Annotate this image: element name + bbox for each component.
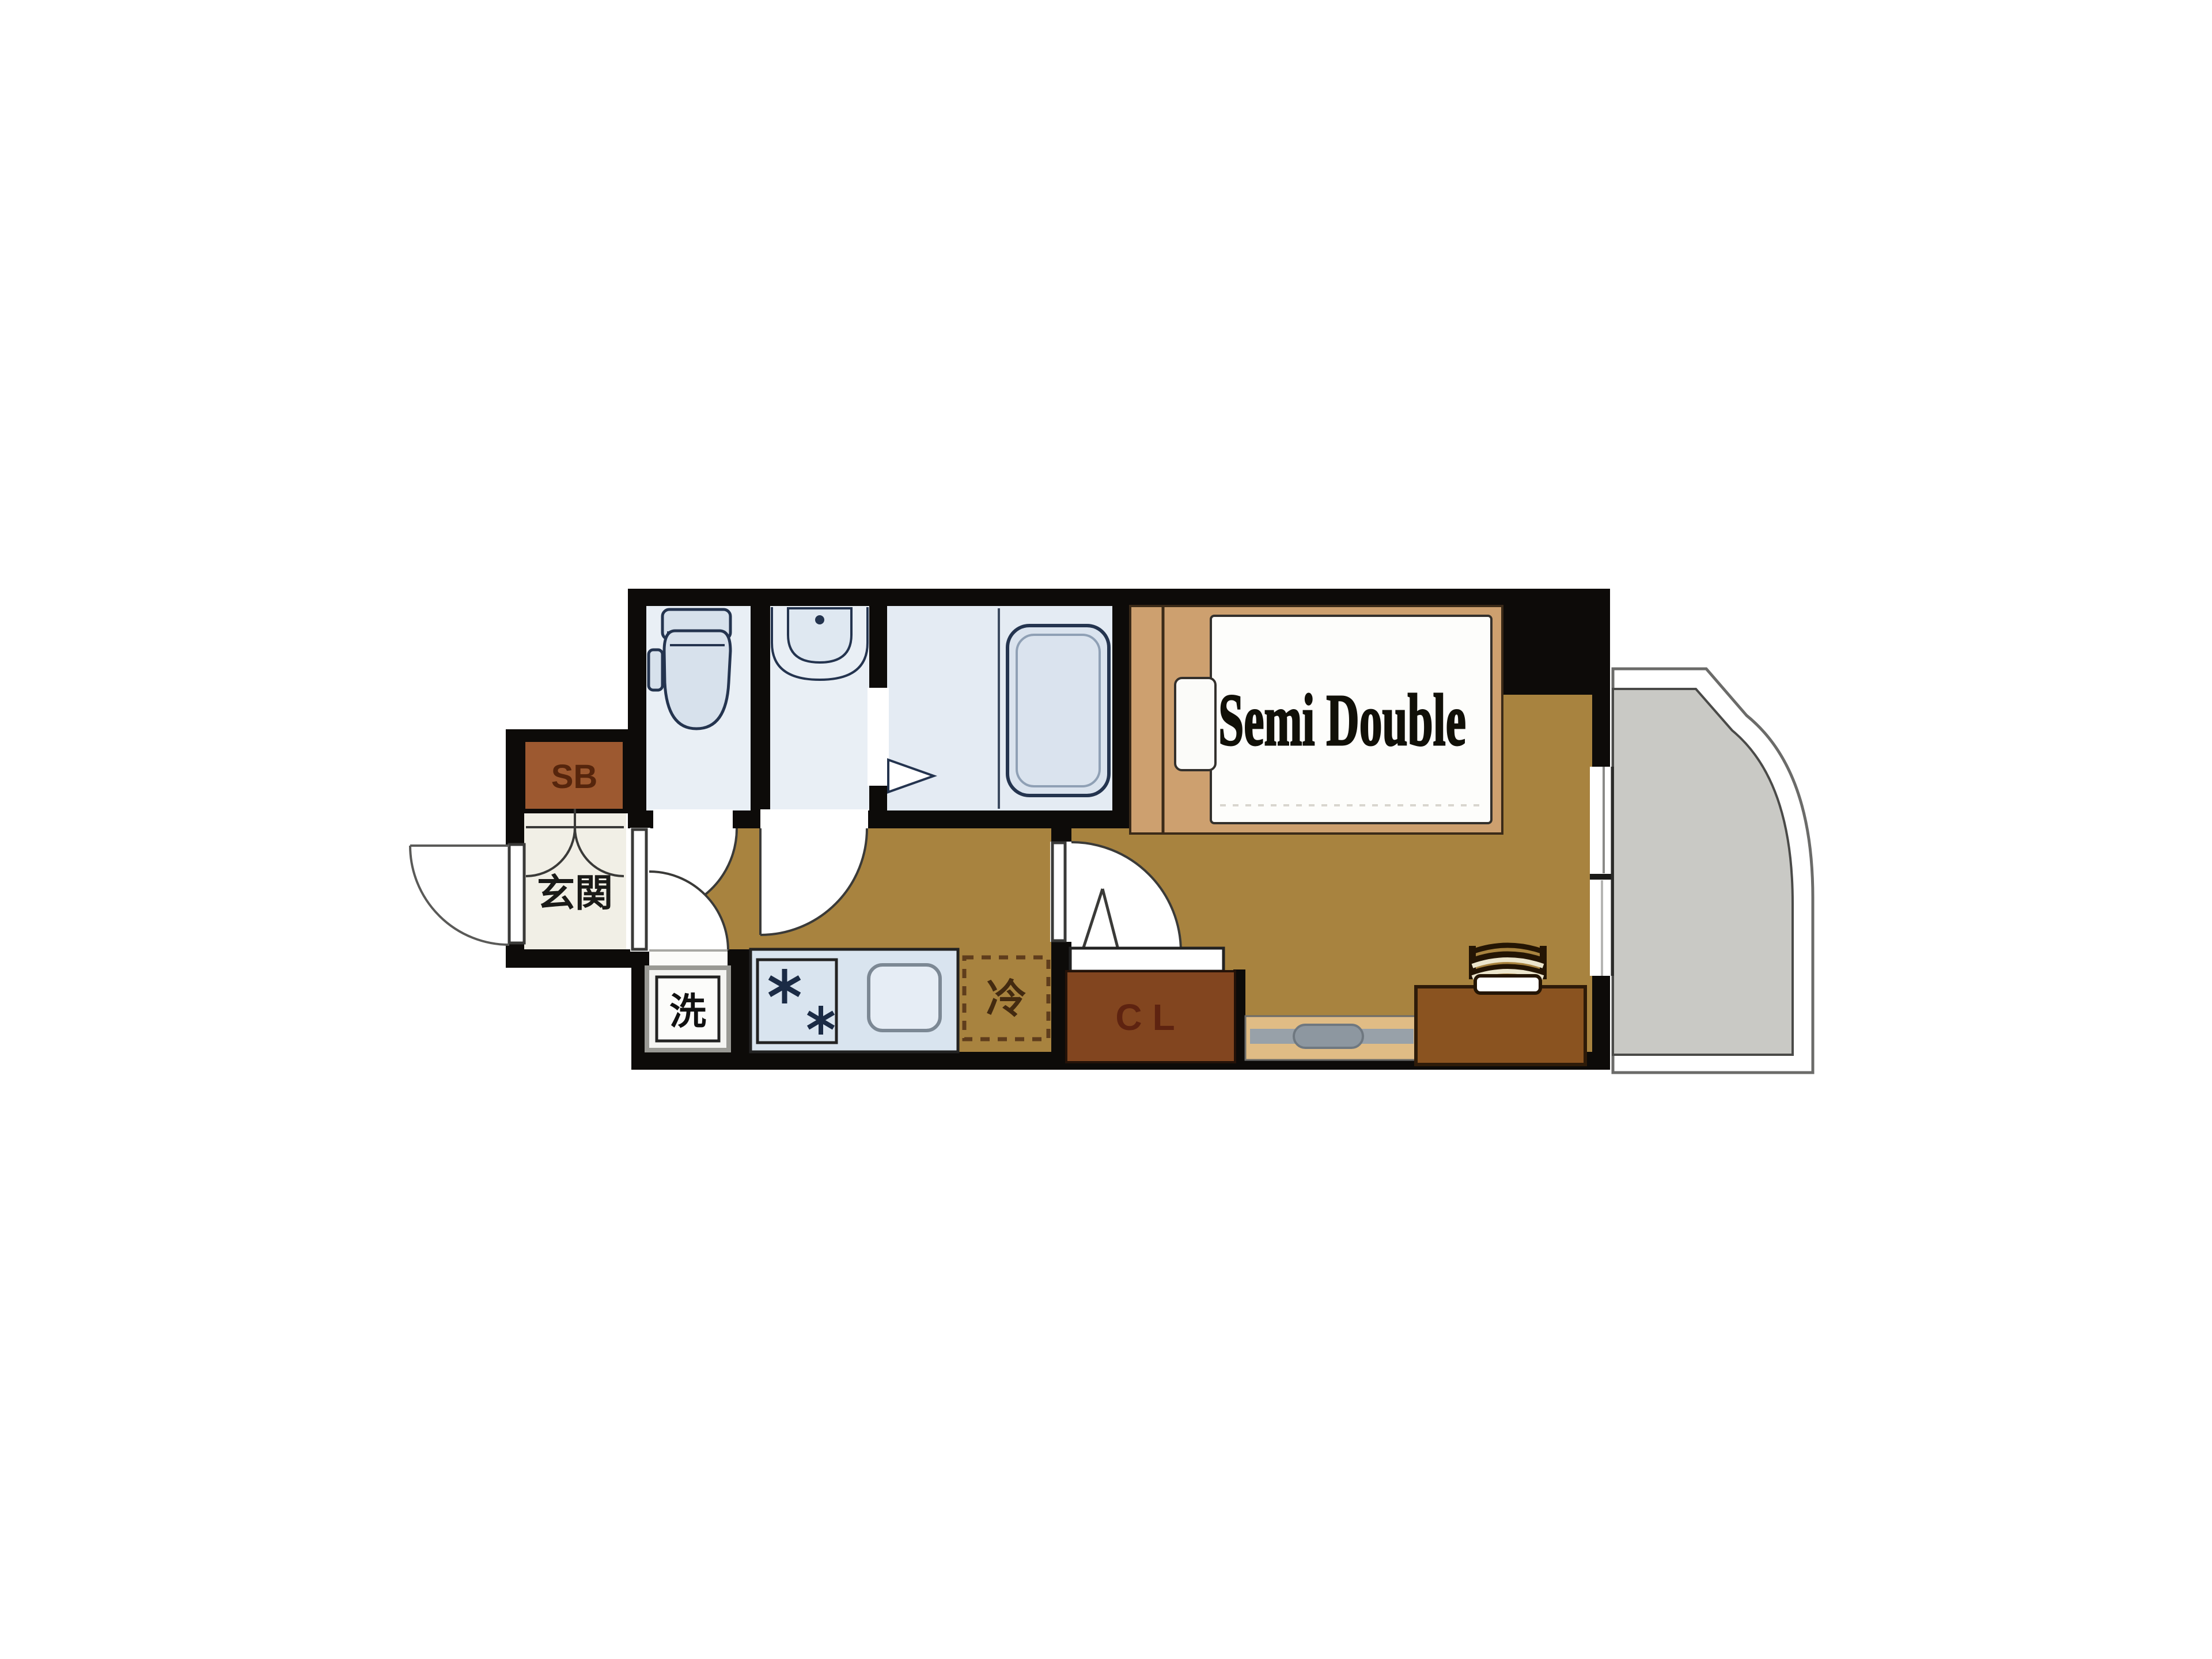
- svg-text:Semi Double: Semi Double: [1218, 680, 1466, 762]
- svg-text:玄関: 玄関: [537, 872, 613, 914]
- svg-text:SB: SB: [551, 758, 598, 796]
- svg-text:CL: CL: [1115, 997, 1185, 1038]
- svg-text:洗: 洗: [669, 991, 706, 1032]
- svg-text:冷: 冷: [986, 976, 1027, 1021]
